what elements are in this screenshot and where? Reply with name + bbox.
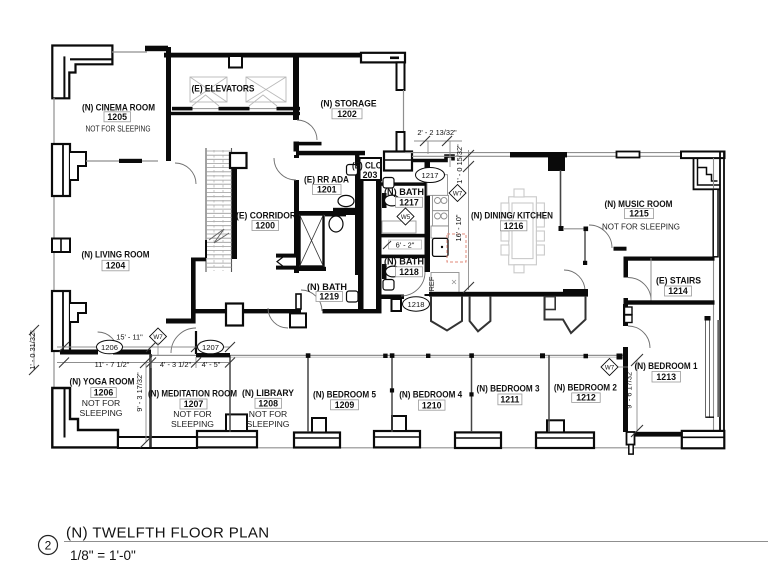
svg-text:(N) LIVING ROOM: (N) LIVING ROOM bbox=[82, 250, 150, 260]
svg-text:1207: 1207 bbox=[184, 399, 204, 409]
svg-text:(N) BEDROOM 3: (N) BEDROOM 3 bbox=[477, 384, 540, 394]
svg-text:(E) STAIRS: (E) STAIRS bbox=[656, 276, 701, 286]
svg-text:1' - 0 15/32": 1' - 0 15/32" bbox=[455, 144, 464, 184]
svg-text:1211: 1211 bbox=[500, 395, 519, 405]
svg-text:SLEEPING: SLEEPING bbox=[247, 419, 290, 429]
svg-text:9' - 6 17/32": 9' - 6 17/32" bbox=[625, 369, 634, 409]
svg-text:(N) BEDROOM 2: (N) BEDROOM 2 bbox=[554, 383, 617, 393]
svg-text:1217: 1217 bbox=[399, 197, 419, 207]
svg-text:(E) ELEVATORS: (E) ELEVATORS bbox=[192, 84, 255, 94]
svg-text:(N) BATH: (N) BATH bbox=[307, 282, 347, 292]
svg-text:2: 2 bbox=[45, 539, 52, 553]
svg-text:(N) LIBRARY: (N) LIBRARY bbox=[242, 388, 294, 398]
svg-text:NOT FOR SLEEPING: NOT FOR SLEEPING bbox=[86, 124, 151, 134]
svg-text:(N) BATH: (N) BATH bbox=[384, 257, 424, 267]
svg-text:SLEEPING: SLEEPING bbox=[171, 419, 214, 429]
svg-text:SLEEPING: SLEEPING bbox=[80, 408, 123, 418]
svg-text:16' - 10": 16' - 10" bbox=[454, 214, 463, 241]
svg-text:4' - 3 1/2": 4' - 3 1/2" bbox=[160, 360, 192, 369]
svg-text:W5: W5 bbox=[401, 214, 411, 221]
svg-text:1200: 1200 bbox=[255, 221, 275, 231]
svg-text:(N) STORAGE: (N) STORAGE bbox=[321, 99, 377, 109]
svg-text:1218: 1218 bbox=[408, 300, 425, 309]
svg-text:1214: 1214 bbox=[668, 286, 688, 296]
svg-text:(N) MUSIC ROOM: (N) MUSIC ROOM bbox=[605, 199, 673, 209]
svg-text:11' - 7 1/2": 11' - 7 1/2" bbox=[95, 360, 130, 369]
svg-text:(N) BEDROOM 4: (N) BEDROOM 4 bbox=[399, 390, 463, 400]
svg-text:NOT FOR: NOT FOR bbox=[249, 409, 288, 419]
svg-text:1219: 1219 bbox=[319, 292, 339, 302]
svg-text:(N) BATH: (N) BATH bbox=[384, 187, 424, 197]
svg-text:4' - 5": 4' - 5" bbox=[202, 360, 221, 369]
svg-text:1/8" = 1'-0": 1/8" = 1'-0" bbox=[70, 548, 136, 563]
svg-text:9' - 3 17/32": 9' - 3 17/32" bbox=[135, 372, 144, 412]
svg-text:15' - 11": 15' - 11" bbox=[116, 333, 143, 342]
svg-text:1204: 1204 bbox=[106, 261, 126, 271]
svg-text:(N) MEDITATION ROOM: (N) MEDITATION ROOM bbox=[148, 389, 237, 399]
svg-text:1212: 1212 bbox=[576, 393, 596, 403]
svg-text:(E) CLO: (E) CLO bbox=[352, 161, 382, 171]
svg-text:1209: 1209 bbox=[335, 400, 355, 410]
svg-text:1208: 1208 bbox=[258, 398, 278, 408]
svg-text:NOT FOR: NOT FOR bbox=[173, 409, 212, 419]
svg-text:NOT FOR: NOT FOR bbox=[82, 398, 121, 408]
svg-text:1207: 1207 bbox=[202, 343, 219, 352]
svg-text:1213: 1213 bbox=[656, 372, 676, 382]
svg-text:(E) CORRIDOR: (E) CORRIDOR bbox=[236, 211, 296, 221]
svg-text:2' - 2 13/32": 2' - 2 13/32" bbox=[417, 128, 457, 137]
svg-text:1216: 1216 bbox=[504, 221, 524, 231]
svg-text:1202: 1202 bbox=[337, 109, 357, 119]
svg-text:REF: REF bbox=[427, 276, 436, 291]
svg-text:W7: W7 bbox=[453, 191, 463, 198]
svg-text:W7: W7 bbox=[153, 334, 163, 341]
svg-text:W7: W7 bbox=[605, 365, 615, 372]
svg-text:(N) YOGA ROOM: (N) YOGA ROOM bbox=[70, 377, 135, 387]
svg-text:203: 203 bbox=[363, 170, 378, 180]
svg-text:1218: 1218 bbox=[399, 267, 419, 277]
svg-text:1215: 1215 bbox=[629, 209, 649, 219]
svg-text:6' - 2": 6' - 2" bbox=[396, 240, 415, 249]
svg-text:1210: 1210 bbox=[422, 400, 442, 410]
svg-text:NOT FOR SLEEPING: NOT FOR SLEEPING bbox=[602, 222, 680, 232]
svg-text:1' - 0 31/32": 1' - 0 31/32" bbox=[28, 330, 37, 370]
svg-text:(E) RR ADA: (E) RR ADA bbox=[304, 175, 349, 185]
svg-text:1206: 1206 bbox=[94, 388, 114, 398]
svg-text:(N) DINING/ KITCHEN: (N) DINING/ KITCHEN bbox=[471, 211, 553, 221]
svg-text:1206: 1206 bbox=[101, 343, 118, 352]
svg-text:1201: 1201 bbox=[317, 185, 337, 195]
svg-text:1205: 1205 bbox=[107, 112, 127, 122]
svg-text:1217: 1217 bbox=[422, 171, 439, 180]
svg-text:(N) BEDROOM 5: (N) BEDROOM 5 bbox=[313, 390, 376, 400]
svg-text:(N) TWELFTH FLOOR PLAN: (N) TWELFTH FLOOR PLAN bbox=[66, 525, 270, 542]
svg-text:(N) BEDROOM 1: (N) BEDROOM 1 bbox=[635, 361, 698, 371]
